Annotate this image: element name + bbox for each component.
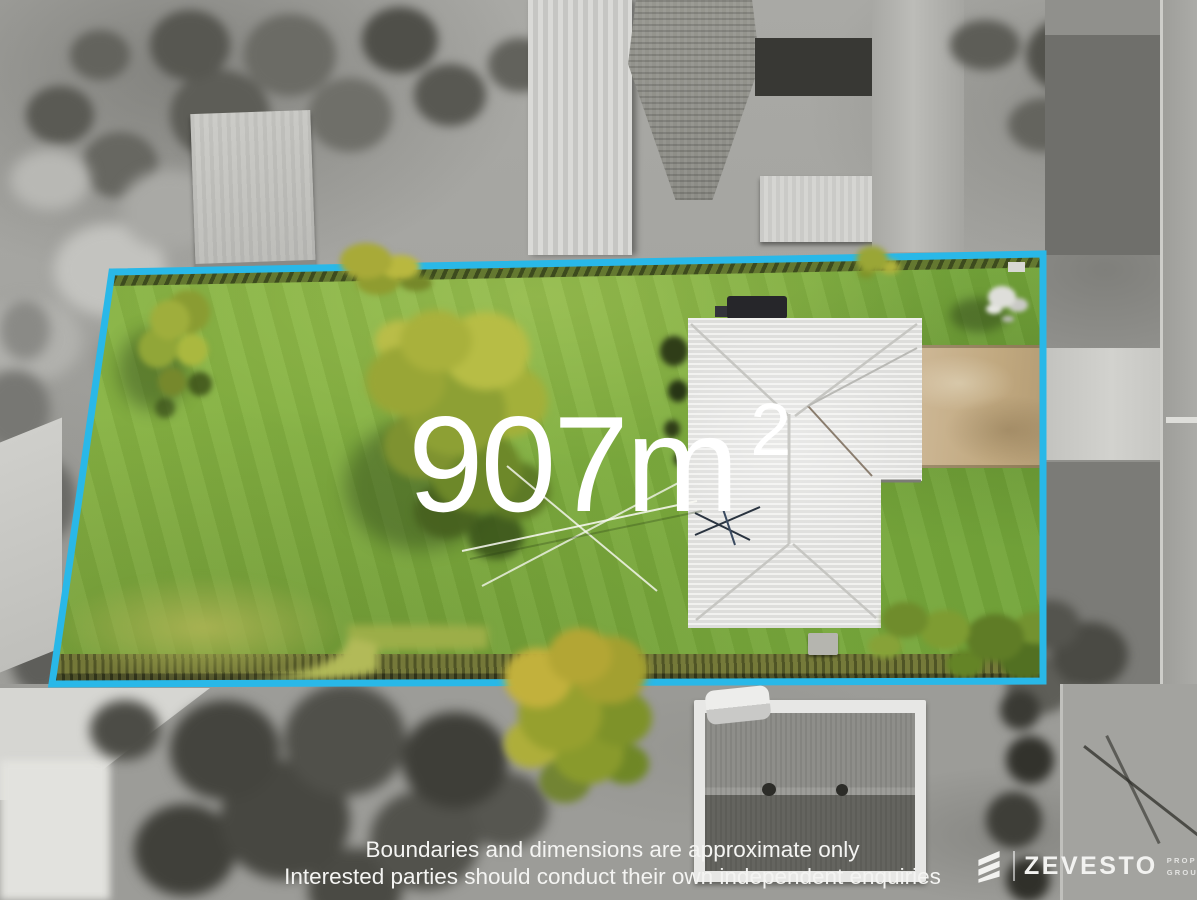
land-area-superscript: 2 xyxy=(750,393,791,467)
agency-tagline-line-1: PROPERTY xyxy=(1167,856,1197,865)
bush-over-rear-boundary xyxy=(340,243,392,279)
land-area-label: 907m2 xyxy=(408,396,791,532)
agency-name: ZEVESTO xyxy=(1024,852,1158,881)
aerial-property-photo: 907m2 Boundaries and dimensions are appr… xyxy=(0,0,1197,900)
land-area-value: 907m xyxy=(408,388,736,540)
agency-tagline: PROPERTY GROUP xyxy=(1167,856,1197,877)
zevesto-logo: ZEVESTO PROPERTY GROUP xyxy=(974,846,1197,886)
zevesto-logo-mark xyxy=(974,849,1004,883)
street-tree-over-front-boundary xyxy=(548,628,612,684)
bush-over-rear-boundary xyxy=(856,246,888,272)
agency-tagline-line-2: GROUP xyxy=(1167,868,1197,877)
logo-divider xyxy=(1013,851,1015,881)
